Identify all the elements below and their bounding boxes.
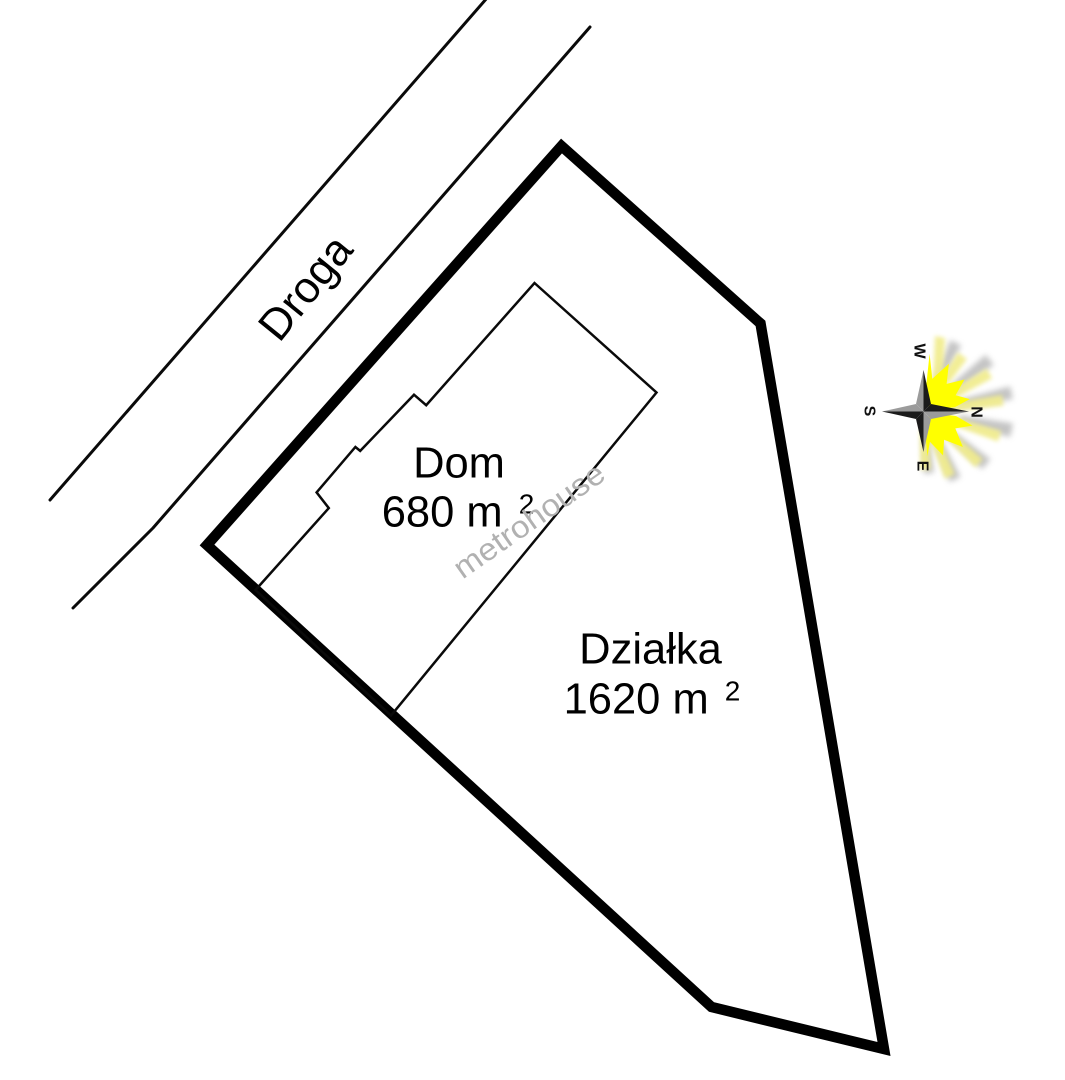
svg-text:Działka: Działka <box>579 626 722 674</box>
svg-text:Droga: Droga <box>249 225 363 349</box>
svg-text:Dom: Dom <box>413 440 505 488</box>
svg-text:W: W <box>911 343 928 359</box>
svg-text:N: N <box>968 406 985 418</box>
svg-text:E: E <box>914 461 931 472</box>
svg-text:1620 m 2: 1620 m 2 <box>564 676 741 724</box>
svg-text:S: S <box>861 406 878 417</box>
